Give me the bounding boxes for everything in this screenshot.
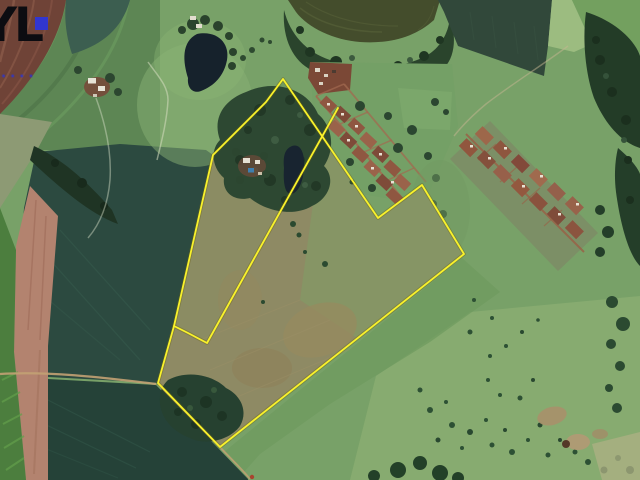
allotment-band bbox=[450, 121, 614, 271]
terrain-layer bbox=[0, 0, 640, 480]
satellite-map[interactable]: YL •••• bbox=[0, 0, 640, 480]
